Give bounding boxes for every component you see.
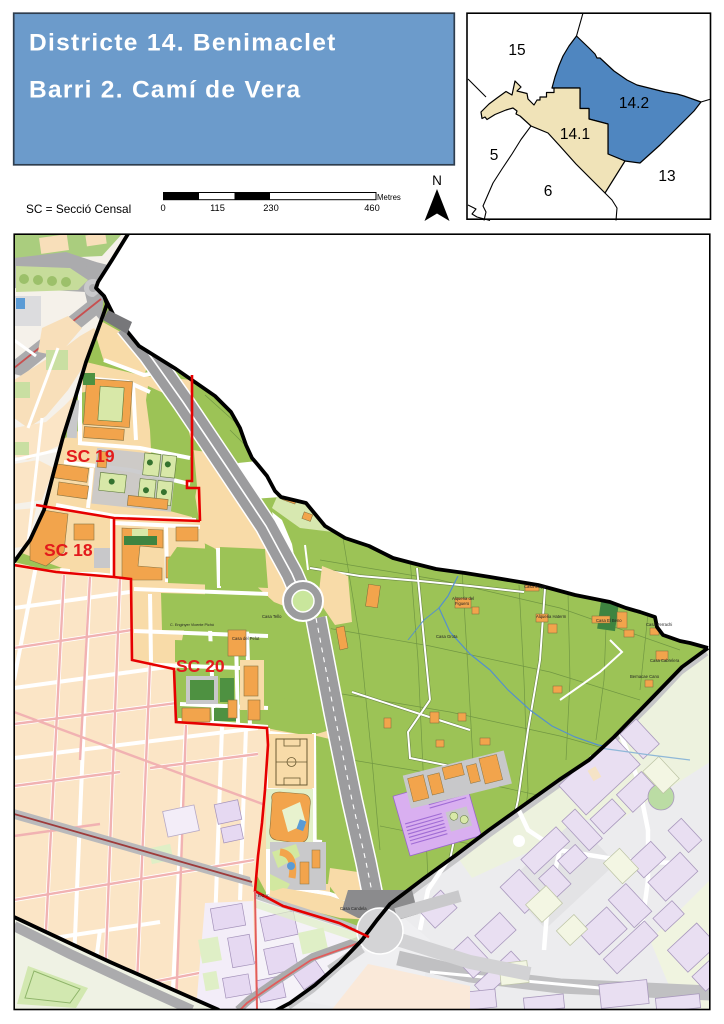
svg-text:Casa El Beno: Casa El Beno — [596, 618, 622, 623]
svg-text:Casa Mayor: Casa Mayor — [524, 584, 547, 589]
svg-text:SC = Secció Censal: SC = Secció Censal — [26, 202, 131, 216]
svg-text:115: 115 — [210, 203, 225, 213]
svg-text:SC 20: SC 20 — [176, 656, 225, 676]
svg-text:Casa Ferrachi: Casa Ferrachi — [646, 622, 672, 627]
svg-text:SC 19: SC 19 — [66, 446, 115, 466]
svg-text:460: 460 — [364, 203, 380, 213]
svg-text:Districte 14. Benimaclet: Districte 14. Benimaclet — [29, 30, 337, 57]
svg-text:5: 5 — [490, 147, 499, 164]
svg-text:Casa Tello: Casa Tello — [262, 614, 282, 619]
svg-text:Alqueria Haterm: Alqueria Haterm — [536, 614, 567, 619]
svg-text:SC 18: SC 18 — [44, 540, 93, 560]
svg-text:15: 15 — [508, 42, 525, 59]
svg-text:0: 0 — [161, 203, 166, 213]
svg-text:14.1: 14.1 — [560, 126, 590, 143]
svg-text:N: N — [432, 173, 442, 188]
svg-text:Figuero: Figuero — [455, 601, 470, 606]
svg-text:F.G.V.: F.G.V. — [258, 893, 269, 898]
svg-text:Casa Grota: Casa Grota — [436, 634, 458, 639]
svg-text:Casa Cabrelera: Casa Cabrelera — [650, 658, 680, 663]
svg-text:6: 6 — [544, 183, 553, 200]
svg-text:Barri 2. Camí de Vera: Barri 2. Camí de Vera — [29, 77, 301, 104]
svg-text:230: 230 — [263, 203, 279, 213]
svg-text:Bernacae Cano: Bernacae Cano — [630, 674, 660, 679]
svg-text:13: 13 — [658, 168, 675, 185]
svg-text:Casa del Pelut: Casa del Pelut — [232, 636, 260, 641]
svg-text:Casa Candela: Casa Candela — [340, 906, 367, 911]
svg-text:Metres: Metres — [377, 193, 401, 202]
svg-text:C. Enginyer Vicente Pichó: C. Enginyer Vicente Pichó — [170, 623, 214, 627]
svg-text:14.2: 14.2 — [619, 95, 649, 112]
